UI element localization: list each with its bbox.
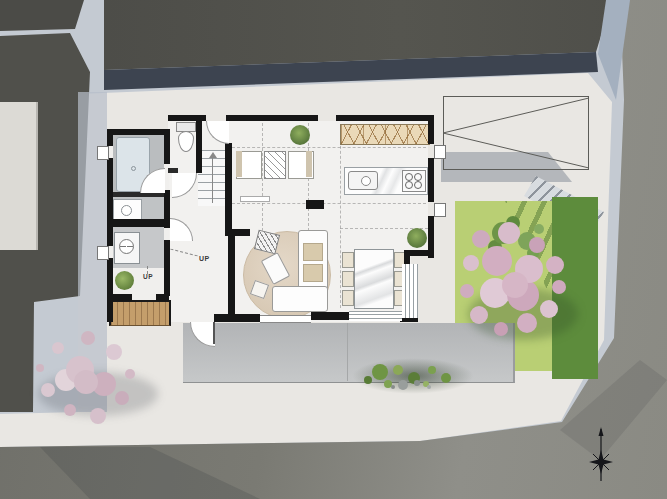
wall: [107, 158, 113, 246]
sink-basin: [361, 176, 371, 186]
garden-tree-blossom: [502, 272, 528, 298]
burner: [414, 173, 422, 181]
wall: [228, 236, 235, 321]
bedroom-desk: [240, 196, 270, 202]
potted-plant: [115, 271, 134, 290]
driveway-seam: [347, 323, 348, 381]
grid-line: [340, 126, 341, 308]
dining-plant: [407, 228, 427, 248]
wall: [214, 314, 260, 322]
wall: [107, 219, 169, 227]
shrub-bed-shadow: [352, 358, 474, 394]
entry-deck: [109, 300, 171, 326]
tree-shadow-garden: [468, 288, 578, 340]
bed-left-headboard: [236, 151, 242, 177]
vanity-sink: [121, 205, 132, 216]
wall: [428, 158, 434, 202]
up-label-stairs: UP: [199, 255, 210, 262]
window-marker: [434, 145, 446, 159]
wall: [336, 115, 434, 121]
bed-right-headboard: [306, 151, 312, 177]
rock-cluster: [398, 380, 408, 390]
up-label-entry: UP: [143, 273, 153, 280]
grid-line: [232, 203, 426, 204]
sliding-window-south: [260, 315, 311, 323]
burner: [414, 181, 422, 189]
bedroom-plant: [290, 125, 310, 145]
sofa-cushion: [303, 264, 323, 282]
corner-window-vertical: [402, 264, 418, 318]
dining-table: [354, 249, 394, 309]
window-marker: [97, 146, 109, 160]
site-plan: UP UP: [0, 0, 667, 499]
washer-drum: [119, 239, 134, 254]
neighbor-building-roof: [0, 102, 38, 250]
stair-arrowhead: [209, 152, 217, 158]
wall: [107, 258, 113, 322]
lawn-shaded: [552, 197, 598, 379]
stair-direction-line: [212, 155, 213, 203]
wall: [164, 129, 170, 164]
sofa-chaise: [272, 286, 328, 312]
wall: [164, 240, 170, 296]
wall: [107, 129, 169, 135]
burner: [405, 173, 413, 181]
floor-hatch-panel: [264, 151, 286, 179]
wall: [225, 143, 232, 235]
burner: [405, 181, 413, 189]
wall: [225, 229, 250, 236]
wall: [107, 129, 113, 146]
grid-line: [232, 147, 426, 148]
tree-shadow-street: [38, 372, 158, 416]
dining-chair: [342, 252, 354, 268]
wall: [428, 117, 434, 144]
kitchen-cabinets: [340, 124, 430, 145]
wall: [306, 200, 324, 209]
sofa-cushion: [303, 243, 323, 261]
wall: [311, 312, 349, 320]
dining-chair: [342, 290, 354, 306]
wall: [107, 294, 132, 301]
carport-outline: [443, 96, 589, 170]
dining-chair: [342, 271, 354, 287]
corner-window-bottom: [349, 311, 402, 321]
entry-door-leaf: [213, 322, 215, 344]
north-arrow-compass: [586, 426, 616, 484]
wall: [196, 115, 202, 173]
window-marker: [434, 203, 446, 217]
window-marker: [97, 246, 109, 260]
sofa-main: [298, 230, 328, 294]
street-tree-blossom: [74, 370, 98, 394]
shrub-cluster: [372, 364, 388, 380]
grid-line: [262, 123, 263, 231]
garden-tree-foliage-green: [492, 222, 514, 244]
shower-drain: [131, 166, 136, 171]
wall: [226, 115, 318, 121]
